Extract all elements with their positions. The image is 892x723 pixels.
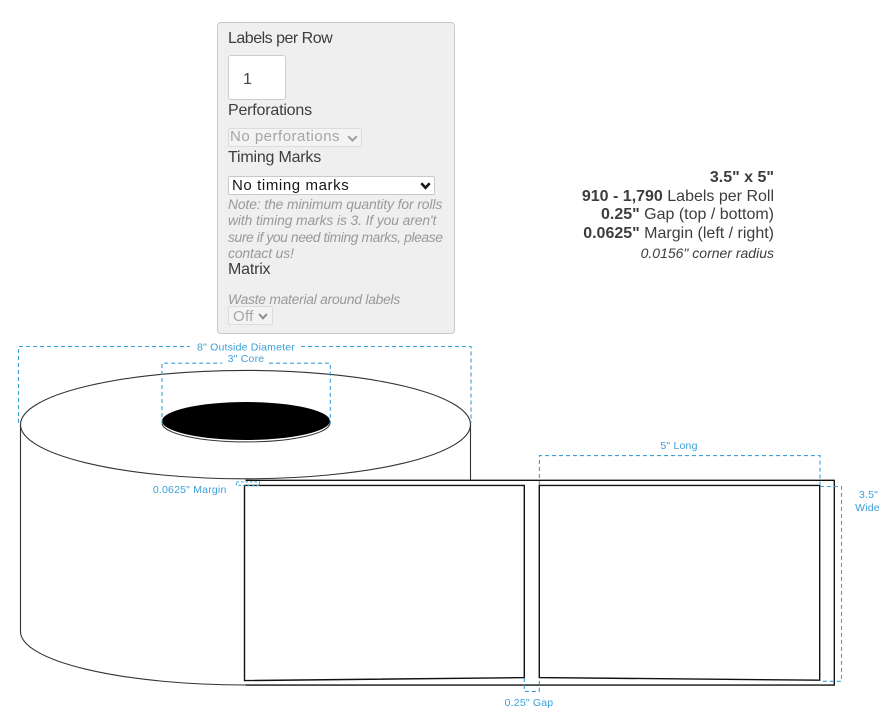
svg-text:5" Long: 5" Long <box>660 440 697 452</box>
svg-text:3.5": 3.5" <box>859 489 878 501</box>
svg-text:0.25" Gap: 0.25" Gap <box>505 697 554 709</box>
svg-text:Wide: Wide <box>855 502 880 514</box>
svg-text:0.0625" Margin: 0.0625" Margin <box>153 484 227 496</box>
svg-text:3" Core: 3" Core <box>228 353 265 365</box>
svg-text:8" Outside Diameter: 8" Outside Diameter <box>197 342 295 354</box>
